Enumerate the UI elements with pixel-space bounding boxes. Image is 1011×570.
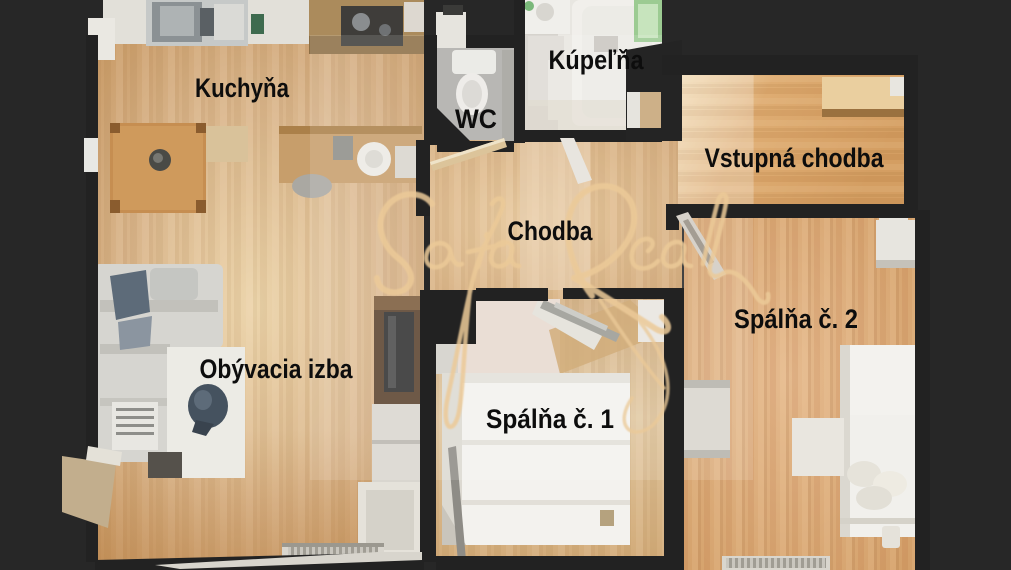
svg-text:Kuchyňa: Kuchyňa: [195, 73, 290, 103]
svg-text:Chodba: Chodba: [508, 216, 594, 246]
svg-text:Kúpeľňa: Kúpeľňa: [549, 45, 645, 75]
svg-text:Vstupná chodba: Vstupná chodba: [705, 143, 885, 173]
svg-text:Spálňa č. 2: Spálňa č. 2: [734, 304, 858, 334]
svg-text:Obývacia izba: Obývacia izba: [200, 354, 354, 384]
svg-text:WC: WC: [455, 104, 497, 134]
svg-text:Spálňa č. 1: Spálňa č. 1: [486, 404, 614, 434]
